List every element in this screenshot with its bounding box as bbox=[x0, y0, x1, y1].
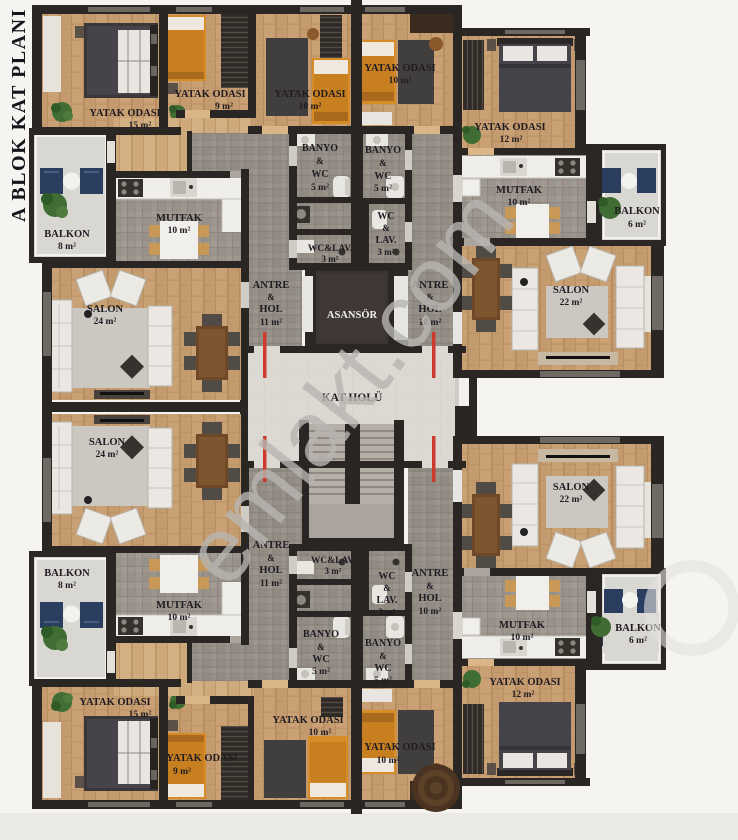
svg-text:WC: WC bbox=[374, 171, 391, 182]
svg-text:A BLOK KAT PLANI: A BLOK KAT PLANI bbox=[8, 8, 30, 222]
svg-text:10 m²: 10 m² bbox=[419, 607, 442, 617]
svg-text:&: & bbox=[383, 583, 391, 593]
svg-text:&: & bbox=[379, 158, 387, 168]
svg-text:11 m²: 11 m² bbox=[260, 318, 282, 328]
svg-text:10 m²: 10 m² bbox=[309, 728, 332, 738]
svg-text:10 m²: 10 m² bbox=[389, 76, 412, 86]
svg-text:5 m²: 5 m² bbox=[374, 676, 392, 686]
svg-text:WC: WC bbox=[312, 654, 329, 665]
svg-text:3 m²: 3 m² bbox=[379, 607, 396, 617]
svg-text:&: & bbox=[382, 223, 390, 233]
svg-text:10 m²: 10 m² bbox=[168, 226, 191, 236]
svg-text:MUTFAK: MUTFAK bbox=[156, 600, 203, 611]
svg-text:SALON: SALON bbox=[87, 304, 124, 315]
svg-text:5 m²: 5 m² bbox=[311, 183, 329, 193]
svg-text:YATAK ODASI: YATAK ODASI bbox=[489, 677, 560, 688]
svg-text:6 m²: 6 m² bbox=[628, 220, 646, 230]
svg-text:24 m²: 24 m² bbox=[96, 450, 119, 460]
svg-text:22 m²: 22 m² bbox=[560, 495, 583, 505]
svg-text:BANYO: BANYO bbox=[303, 629, 339, 640]
svg-text:MUTFAK: MUTFAK bbox=[156, 213, 203, 224]
svg-text:3 m²: 3 m² bbox=[325, 566, 342, 576]
svg-text:WC: WC bbox=[311, 169, 328, 180]
svg-text:10 m²: 10 m² bbox=[168, 613, 191, 623]
svg-text:BALKON: BALKON bbox=[614, 206, 660, 217]
svg-text:WC: WC bbox=[378, 571, 395, 582]
svg-text:YATAK ODASI: YATAK ODASI bbox=[272, 715, 343, 726]
svg-text:15 m²: 15 m² bbox=[129, 121, 152, 131]
svg-text:BANYO: BANYO bbox=[365, 145, 401, 156]
svg-text:10 m²: 10 m² bbox=[299, 102, 322, 112]
svg-text:6 m²: 6 m² bbox=[629, 636, 647, 646]
svg-text:24 m²: 24 m² bbox=[94, 317, 117, 327]
svg-text:WC: WC bbox=[377, 211, 394, 222]
svg-text:&: & bbox=[316, 156, 324, 166]
svg-text:&: & bbox=[317, 642, 325, 652]
svg-text:YATAK ODASI: YATAK ODASI bbox=[166, 753, 237, 764]
svg-text:9 m²: 9 m² bbox=[173, 767, 191, 777]
svg-text:&: & bbox=[379, 651, 387, 661]
svg-text:11 m²: 11 m² bbox=[260, 579, 282, 589]
svg-text:BALKON: BALKON bbox=[44, 568, 90, 579]
svg-text:10 m²: 10 m² bbox=[508, 198, 531, 208]
svg-text:ANTRE: ANTRE bbox=[253, 280, 290, 291]
svg-text:HOL: HOL bbox=[259, 304, 282, 315]
svg-text:HOL: HOL bbox=[418, 593, 441, 604]
svg-text:8 m²: 8 m² bbox=[58, 581, 76, 591]
svg-text:&: & bbox=[426, 581, 434, 591]
svg-text:15 m²: 15 m² bbox=[129, 710, 152, 720]
svg-text:3 m²: 3 m² bbox=[322, 254, 339, 264]
svg-text:22 m²: 22 m² bbox=[560, 298, 583, 308]
svg-text:YATAK ODASI: YATAK ODASI bbox=[364, 63, 435, 74]
svg-text:WC: WC bbox=[374, 663, 391, 674]
svg-text:YATAK ODASI: YATAK ODASI bbox=[474, 122, 545, 133]
svg-text:9 m²: 9 m² bbox=[215, 102, 233, 112]
svg-text:ANTRE: ANTRE bbox=[412, 568, 449, 579]
svg-text:BANYO: BANYO bbox=[302, 143, 338, 154]
svg-text:SALON: SALON bbox=[89, 437, 126, 448]
svg-text:BANYO: BANYO bbox=[365, 638, 401, 649]
svg-text:10 m²: 10 m² bbox=[511, 633, 534, 643]
svg-text:YATAK ODASI: YATAK ODASI bbox=[274, 89, 345, 100]
svg-text:10 m²: 10 m² bbox=[377, 756, 400, 766]
svg-text:YATAK ODASI: YATAK ODASI bbox=[89, 108, 160, 119]
svg-text:LAV.: LAV. bbox=[376, 595, 398, 606]
svg-text:WC&LAV.: WC&LAV. bbox=[308, 244, 352, 254]
svg-text:8 m²: 8 m² bbox=[58, 242, 76, 252]
svg-text:SALON: SALON bbox=[553, 285, 590, 296]
svg-text:YATAK ODASI: YATAK ODASI bbox=[79, 697, 150, 708]
svg-text:YATAK ODASI: YATAK ODASI bbox=[174, 89, 245, 100]
svg-text:WC&LAV.: WC&LAV. bbox=[311, 556, 355, 566]
svg-text:12 m²: 12 m² bbox=[512, 690, 535, 700]
svg-text:5 m²: 5 m² bbox=[312, 667, 330, 677]
svg-text:MUTFAK: MUTFAK bbox=[499, 620, 546, 631]
svg-text:12 m²: 12 m² bbox=[500, 135, 523, 145]
svg-text:MUTFAK: MUTFAK bbox=[496, 185, 543, 196]
svg-text:SALON: SALON bbox=[553, 482, 590, 493]
svg-text:5 m²: 5 m² bbox=[374, 184, 392, 194]
svg-text:&: & bbox=[267, 292, 275, 302]
svg-text:YATAK ODASI: YATAK ODASI bbox=[364, 742, 435, 753]
svg-text:BALKON: BALKON bbox=[44, 229, 90, 240]
